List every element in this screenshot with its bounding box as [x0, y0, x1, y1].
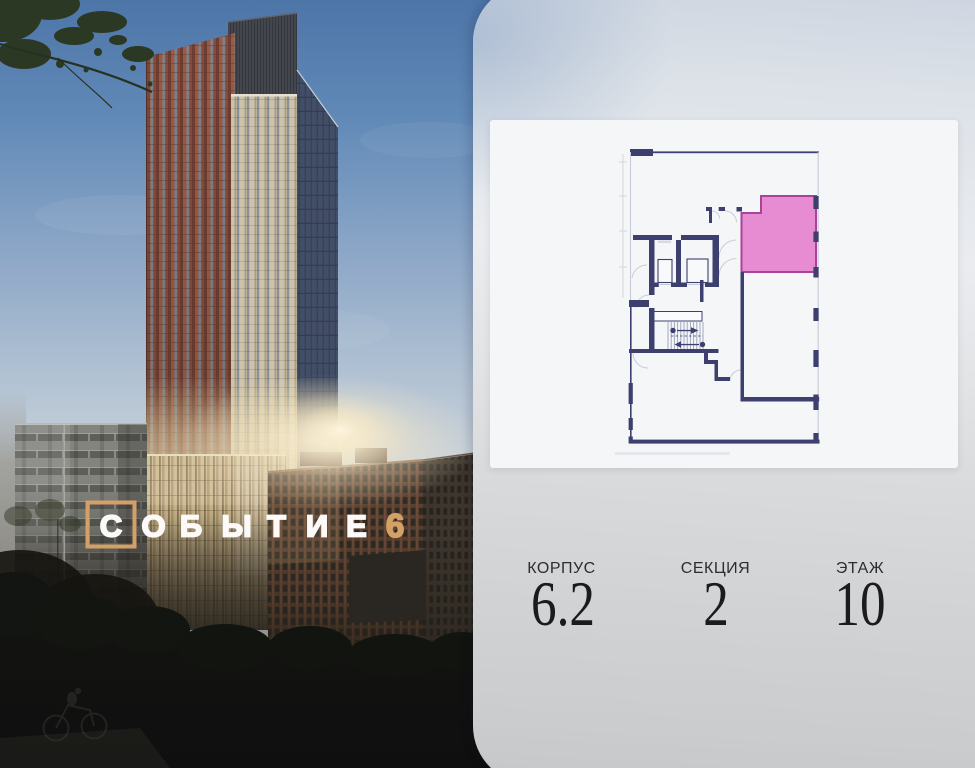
svg-text:Ы: Ы: [221, 509, 251, 544]
svg-text:Б: Б: [180, 509, 202, 544]
svg-text:6: 6: [386, 507, 404, 544]
svg-text:О: О: [141, 509, 165, 544]
svg-text:С: С: [100, 509, 122, 544]
svg-text:Е: Е: [346, 509, 367, 544]
svg-text:Т: Т: [267, 509, 286, 544]
svg-text:И: И: [306, 509, 328, 544]
